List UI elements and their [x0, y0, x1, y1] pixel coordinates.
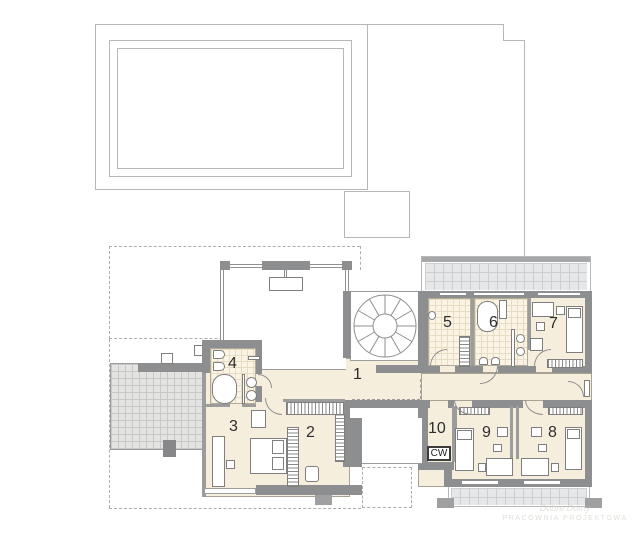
wardrobe: [287, 427, 299, 487]
terrace-north-tiles: [425, 263, 587, 290]
stairwell-wall: [343, 291, 351, 358]
room-label-1: 1: [353, 366, 362, 384]
void-over-living: [262, 340, 346, 370]
wall-room4-north: [202, 340, 260, 348]
terrace-north-parapet: [422, 257, 590, 262]
bidet: [213, 362, 225, 371]
chair: [556, 306, 565, 315]
shelf: [548, 407, 583, 415]
terrace-west-tiles: [110, 363, 203, 450]
bathtub: [212, 374, 237, 404]
void-corner-post: [342, 261, 352, 270]
roof-overhang-dashed: [109, 246, 110, 339]
room-label-8: 8: [548, 424, 557, 442]
void-beam: [262, 261, 310, 270]
window-north: [474, 293, 524, 295]
property-dashed-line: [109, 508, 361, 509]
vanity-counter: [511, 329, 515, 367]
wardrobe: [547, 359, 583, 368]
site-boundary-line: [368, 24, 503, 25]
entry-below-dashed: [362, 467, 412, 508]
chair: [551, 463, 559, 472]
cw-label: CW: [431, 448, 448, 459]
void-over-entry: [362, 418, 422, 464]
spiral-staircase: [351, 292, 419, 360]
terrace-west-pillar: [163, 440, 176, 457]
exterior-wall-east: [585, 291, 592, 373]
wall-north-corridor: [418, 366, 440, 373]
sink: [246, 377, 257, 388]
chair: [226, 460, 235, 469]
chair: [531, 427, 542, 437]
room-label-2: 2: [306, 424, 315, 442]
chair: [536, 322, 545, 331]
roof-overhang-dashed: [109, 246, 360, 247]
floor-plan: CW 1 2 3 4 5 6 7 8 9 10 Dobre Domy PRACO…: [0, 0, 638, 556]
desk: [212, 436, 225, 487]
chair: [497, 427, 508, 437]
site-boundary-line: [503, 24, 504, 41]
wall-room4-room3: [242, 404, 256, 407]
wall-north-corridor: [498, 366, 536, 373]
side-table: [538, 444, 547, 452]
room-label-4: 4: [228, 355, 237, 373]
exterior-wall-southwest: [256, 485, 362, 495]
site-boundary-line: [503, 40, 524, 41]
wall-stair-room5: [418, 291, 428, 373]
bed-pillow: [567, 429, 580, 439]
wall-entry-void: [349, 418, 362, 467]
room-label-7: 7: [549, 315, 558, 333]
void-glass-wall-right: [345, 270, 349, 292]
toilet: [479, 357, 488, 365]
room-label-5: 5: [443, 314, 452, 332]
wall-lamp: [428, 311, 436, 320]
cw-box: CW: [427, 446, 451, 461]
window-south: [524, 481, 560, 484]
exterior-wall-west: [202, 373, 206, 497]
pool-equipment-outline: [344, 191, 410, 238]
ceiling-dashed-mark: [420, 379, 421, 399]
wall-room9-room8: [510, 406, 513, 459]
desk: [521, 458, 549, 476]
window-southwest: [204, 488, 256, 494]
ceiling-dashed-mark: [352, 399, 420, 400]
radiator: [459, 336, 470, 367]
chair: [478, 463, 486, 472]
roof-overhang-dashed: [360, 246, 361, 270]
toilet: [491, 357, 500, 365]
window-north: [440, 293, 466, 295]
armchair: [305, 466, 319, 482]
void-bottom-line: [262, 368, 346, 370]
wall-room9-room8: [516, 406, 519, 459]
exterior-wall-east: [585, 400, 592, 487]
void-glass-wall-left: [220, 264, 224, 342]
tv-screen: [269, 277, 303, 291]
watermark-caps: PRACOWNIA PROJEKTOWA: [498, 515, 632, 522]
bed-pillow: [568, 308, 581, 318]
terrace-west-wall: [138, 363, 203, 372]
bed-pillow: [272, 457, 284, 470]
sink: [246, 390, 257, 401]
room-label-3: 3: [229, 418, 238, 436]
wall-room4-west: [202, 340, 210, 373]
wall-south-step: [444, 462, 452, 487]
bed-pillow: [457, 430, 472, 440]
wall-room4-room3: [206, 404, 230, 407]
door-leaf: [584, 380, 590, 397]
wardrobe-cabinet: [251, 410, 266, 428]
stair-landing-wall: [376, 365, 420, 373]
wall-north-corridor: [455, 366, 483, 373]
site-boundary-line: [524, 40, 525, 258]
floor-corridor: [420, 373, 592, 402]
window-south: [462, 481, 498, 484]
vanity-counter: [242, 374, 245, 404]
wardrobe: [335, 414, 345, 462]
chimney-block: [161, 353, 173, 364]
bed-pillow: [272, 440, 284, 454]
room-label-10: 10: [428, 420, 446, 438]
shelf: [248, 356, 260, 360]
pool-inner-outline: [117, 48, 344, 169]
void-corner-post: [220, 261, 230, 270]
sink: [516, 334, 525, 343]
desk: [486, 458, 513, 476]
side-table: [530, 338, 543, 351]
room-label-9: 9: [482, 424, 491, 442]
entry-stoop: [315, 495, 332, 505]
watermark-script: Dobre Domy: [515, 503, 615, 513]
terrace-south-pier: [437, 498, 454, 508]
toilet: [213, 350, 225, 359]
bathroom-cabinet: [499, 300, 507, 319]
room-label-6: 6: [489, 314, 498, 332]
sink: [516, 347, 525, 356]
side-table: [493, 444, 502, 452]
window-north: [538, 293, 580, 295]
